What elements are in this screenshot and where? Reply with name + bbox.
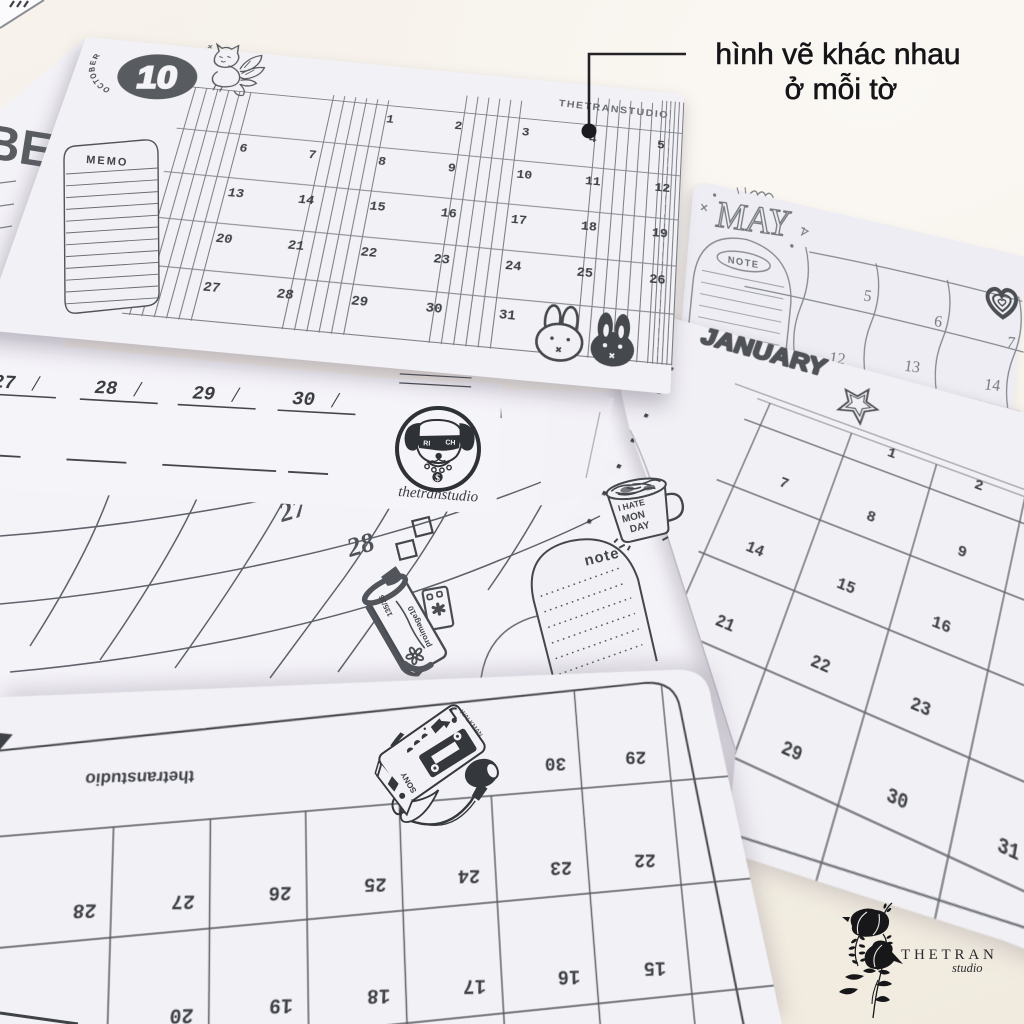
svg-text:ở mỗi tờ: ở mỗi tờ bbox=[785, 73, 898, 106]
svg-text:studio: studio bbox=[952, 961, 983, 975]
svg-text:THETRAN: THETRAN bbox=[901, 947, 998, 963]
svg-text:hình vẽ khác nhau: hình vẽ khác nhau bbox=[715, 38, 960, 71]
